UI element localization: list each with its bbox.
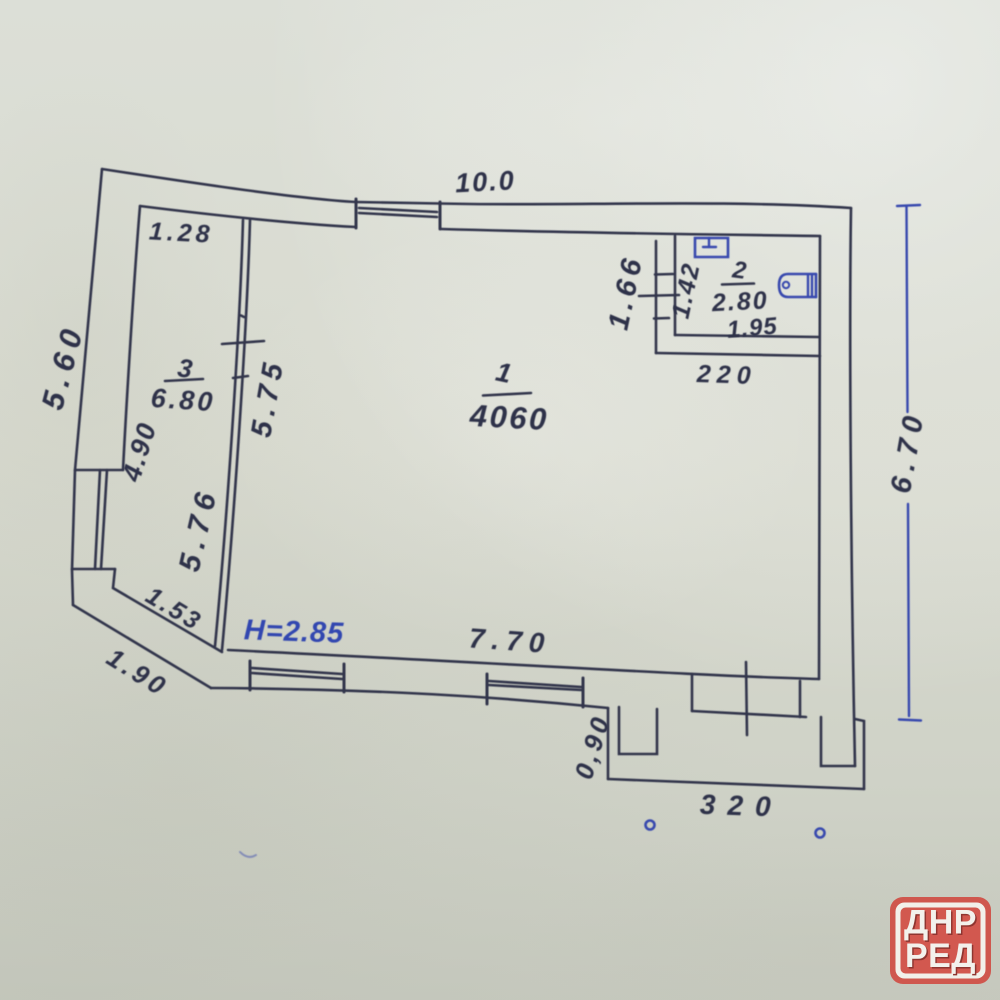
svg-text:10.0: 10.0 [454, 165, 516, 198]
svg-text:H=2.85: H=2.85 [243, 614, 344, 649]
svg-text:1.95: 1.95 [726, 313, 779, 344]
svg-text:7.70: 7.70 [468, 622, 552, 659]
svg-text:320: 320 [699, 789, 783, 823]
svg-text:1.28: 1.28 [148, 217, 214, 248]
svg-text:220: 220 [695, 360, 757, 390]
svg-text:4060: 4060 [468, 398, 550, 437]
svg-text:РЕД: РЕД [905, 937, 976, 975]
svg-text:6.80: 6.80 [150, 383, 216, 417]
svg-text:2.80: 2.80 [710, 286, 769, 317]
svg-text:ДНР: ДНР [904, 904, 977, 942]
